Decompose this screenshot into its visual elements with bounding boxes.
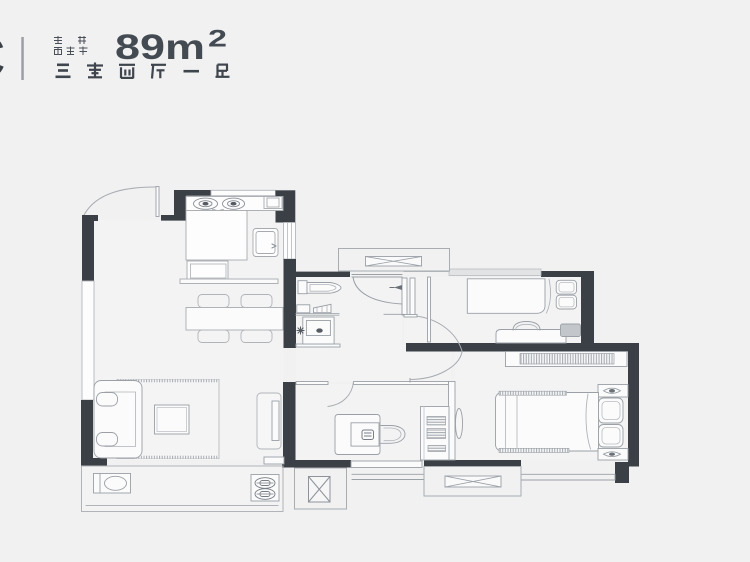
svg-text:2: 2 xyxy=(208,26,227,53)
svg-text:C: C xyxy=(0,24,5,91)
svg-text:89m: 89m xyxy=(115,28,205,67)
